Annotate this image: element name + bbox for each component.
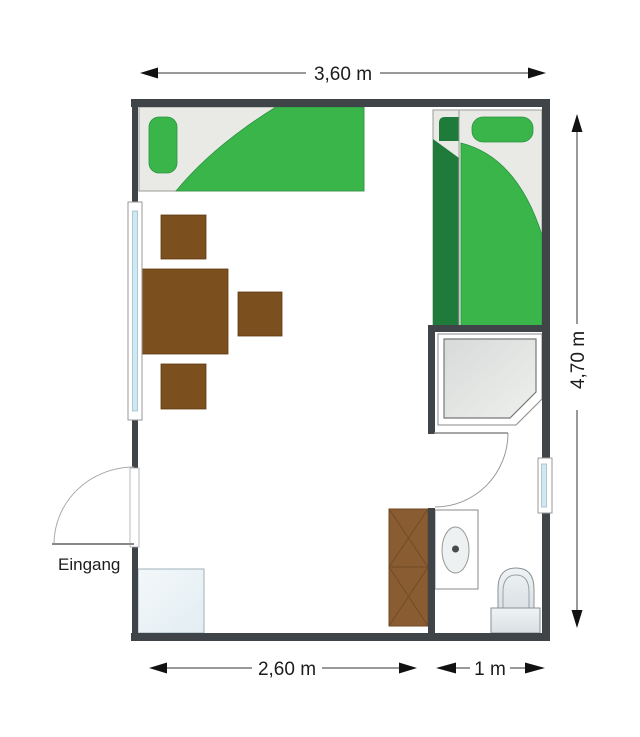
bed-right-blanket-back xyxy=(433,139,459,327)
arrow-up-icon xyxy=(572,114,583,132)
dimension-bottom-bath-label: 1 m xyxy=(474,659,506,680)
window-left-glass xyxy=(133,211,138,411)
entrance-door xyxy=(52,467,139,547)
wall-bath-left-upper xyxy=(428,332,435,434)
wall-right-lower xyxy=(542,513,550,633)
dining-table xyxy=(142,269,228,354)
arrow-left-icon xyxy=(149,663,167,674)
bed-right-pillow-back xyxy=(439,117,459,141)
bathroom-door-swing-arc xyxy=(435,433,508,507)
wall-bath-top xyxy=(428,325,542,332)
arrow-right-icon xyxy=(525,663,545,674)
sink-drain xyxy=(452,546,459,553)
entrance-door-swing-arc xyxy=(54,467,134,544)
bed-left xyxy=(139,107,364,191)
window-right-glass xyxy=(542,464,547,507)
wall-bath-left-lower xyxy=(428,508,435,633)
wall-left-middle xyxy=(132,419,138,469)
dimension-bottom-room-label: 2,60 m xyxy=(258,659,316,680)
arrow-left-icon xyxy=(140,68,158,79)
wall-left-upper xyxy=(132,107,138,203)
bed-right-pillow xyxy=(472,117,533,142)
toilet xyxy=(491,568,540,633)
wall-top xyxy=(131,99,550,107)
dimension-right-label: 4,70 m xyxy=(568,331,589,389)
chair-east xyxy=(238,292,282,336)
entrance-door-jamb xyxy=(130,468,139,547)
arrow-right-icon xyxy=(528,68,546,79)
floor-plan-drawing: 3,60 m 4,70 m 2,60 m 1 m Eingang xyxy=(0,0,640,737)
floor-plan: 3,60 m 4,70 m 2,60 m 1 m Eingang xyxy=(0,0,640,737)
window-left xyxy=(128,202,142,420)
arrow-left-icon xyxy=(436,663,456,674)
arrow-down-icon xyxy=(572,610,583,628)
shower xyxy=(438,334,542,425)
chair-north xyxy=(161,215,206,259)
chair-south xyxy=(161,364,206,409)
bed-left-pillow xyxy=(149,117,177,173)
bathroom-door xyxy=(434,433,508,507)
window-right xyxy=(538,458,552,513)
entrance-label: Eingang xyxy=(58,555,120,574)
shower-tray xyxy=(444,339,536,418)
wardrobe-cabinet xyxy=(389,509,428,626)
toilet-tank xyxy=(491,608,540,633)
dimension-top-label: 3,60 m xyxy=(314,64,372,85)
bed-right xyxy=(433,110,542,327)
fridge-cabinet xyxy=(138,569,204,633)
sink xyxy=(435,510,478,589)
wall-bottom xyxy=(131,633,550,641)
wall-right-upper xyxy=(542,107,550,458)
arrow-right-icon xyxy=(399,663,417,674)
wall-left-lower xyxy=(132,547,138,633)
